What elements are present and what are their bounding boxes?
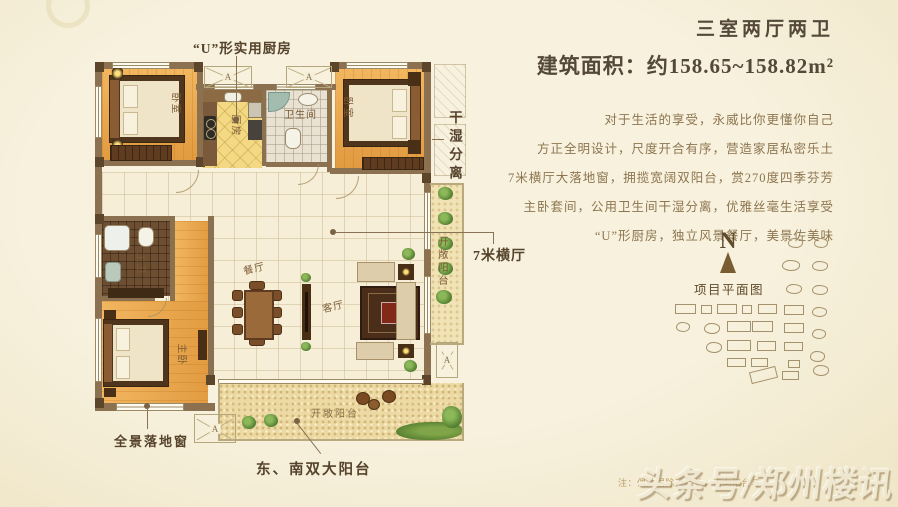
siteplan-building (812, 329, 826, 339)
siteplan-building (788, 360, 800, 368)
wall-pier (95, 157, 104, 167)
section-marker: A (286, 66, 332, 88)
wall (170, 216, 175, 301)
section-marker-label: A (223, 72, 234, 82)
kitchen-sink (224, 92, 242, 102)
chair (249, 281, 265, 290)
room-label-bathroom: 卫生间 (284, 106, 317, 121)
toilet-icon (138, 227, 154, 247)
plant-icon (438, 212, 453, 225)
siteplan-building (752, 321, 773, 332)
siteplan-building (727, 321, 751, 332)
plant-icon (402, 248, 415, 260)
room-label-masterbath: 主卫 (135, 253, 150, 275)
wardrobe (110, 145, 172, 161)
siteplan-building (812, 285, 828, 295)
side-table (398, 344, 414, 358)
sofa (356, 342, 394, 360)
siteplan-building (812, 307, 827, 317)
sliding-door (218, 379, 424, 384)
nightstand (408, 72, 421, 86)
leader-line (236, 56, 237, 118)
siteplan-building (742, 305, 752, 314)
wall-pier (95, 62, 104, 72)
nightstand-lamp (112, 68, 123, 79)
siteplan-building (675, 304, 696, 314)
description-line: 7米横厅大落地窗，拥揽宽阔双阳台，赏270度四季芬芳 (484, 164, 834, 193)
section-marker-label: A (304, 72, 315, 82)
chair (232, 290, 243, 301)
siteplan-building (788, 238, 803, 248)
toilet-icon (285, 128, 301, 149)
siteplan-building (782, 260, 800, 271)
siteplan-building (758, 304, 777, 314)
window (424, 192, 431, 250)
wall-pier (422, 62, 431, 72)
sofa (396, 282, 416, 340)
window (95, 234, 102, 278)
stove-icon (204, 116, 216, 140)
nightstand (408, 140, 421, 154)
siteplan-building (814, 238, 828, 248)
drywet-label: 干湿分离 (444, 110, 464, 184)
balcony-edge (462, 183, 464, 345)
plant-icon (404, 360, 417, 372)
fridge-icon (248, 102, 262, 118)
siteplan-building (751, 358, 768, 367)
siteplan-building (810, 351, 825, 362)
balcony-bottom-label: 开敞阳台 (311, 405, 359, 420)
corner-ring-watermark (46, 0, 90, 28)
vanity-counter (108, 288, 164, 298)
plant-icon (438, 187, 453, 200)
info-panel: 三室两厅两卫 建筑面积：约158.65~158.82m² 对于生活的享受，永威比… (484, 14, 834, 251)
siteplan-building (701, 305, 712, 314)
nightstand (104, 310, 116, 319)
shower-icon (105, 262, 121, 282)
siteplan-building (784, 305, 804, 315)
unit-type-title: 三室两厅两卫 (484, 14, 834, 41)
section-marker: A (436, 342, 458, 378)
wall-pier (422, 173, 431, 183)
panoramic-window-label: 全景落地窗 (114, 431, 189, 450)
siteplan-building (717, 304, 737, 314)
description-line: 对于生活的享受，永威比你更懂你自己 (484, 106, 834, 135)
cabinet (198, 330, 207, 360)
bed (104, 320, 168, 386)
balcony-right-label: 开敞阳台 (434, 236, 449, 288)
balcony-table (368, 399, 380, 410)
room-label-bedroom1: 卧室 (170, 93, 185, 115)
window (424, 276, 431, 334)
wardrobe (362, 157, 424, 170)
siteplan-building (813, 365, 829, 376)
plant-icon (301, 273, 311, 282)
wall (262, 88, 266, 166)
sink-icon (298, 93, 318, 106)
corridor-floor (175, 221, 208, 303)
bathtub-icon (104, 225, 130, 251)
window-panoramic (116, 403, 184, 411)
description-line: 方正全明设计，尺度开合有序，营造家居私密乐土 (484, 135, 834, 164)
wall-pier (95, 398, 104, 408)
tv-console (302, 284, 311, 340)
chair (232, 307, 243, 318)
leader-line (432, 139, 444, 140)
wall (95, 216, 175, 221)
wall (208, 216, 214, 383)
leader-line (147, 409, 148, 429)
wall (327, 88, 332, 172)
plant-icon (301, 342, 311, 351)
siteplan-building (812, 261, 828, 271)
section-marker: A (194, 414, 236, 443)
section-marker-label: A (442, 355, 453, 365)
section-marker: A (204, 66, 252, 88)
dining-table (244, 290, 274, 340)
siteplan-building (676, 322, 690, 332)
bush-icon (442, 406, 462, 428)
wall-pier (95, 214, 104, 224)
description-line: 主卧套间，公用卫生间干湿分离，优雅丝毫生活享受 (484, 193, 834, 222)
wall-pier (206, 375, 215, 385)
sofa (357, 262, 395, 282)
side-table (398, 264, 414, 280)
nightstand (104, 388, 116, 397)
leader-dot (233, 117, 239, 123)
room-label-masterbedroom: 主卧 (176, 344, 191, 366)
siteplan-building (784, 342, 803, 351)
balcony-chair (382, 390, 396, 403)
room-label-bedroom2: 卧室 (342, 97, 357, 119)
siteplan-building (727, 358, 746, 367)
siteplan-building (749, 366, 778, 384)
siteplan-building (704, 323, 720, 334)
section-marker-label: A (210, 423, 221, 433)
double-balcony-label: 东、南双大阳台 (256, 458, 372, 479)
plant-icon (242, 416, 256, 429)
balcony-edge (462, 383, 464, 441)
window (346, 62, 408, 69)
watermark: 头条号/郑州楼讯 (635, 457, 896, 506)
plant-icon (264, 414, 278, 427)
plant-icon (436, 290, 452, 304)
window (95, 318, 102, 382)
wall-pier (194, 62, 203, 72)
oven-icon (248, 120, 262, 140)
leader-line (336, 232, 494, 233)
wall (424, 62, 431, 183)
chair (232, 324, 243, 335)
floorplan-page: A A A A 卧室 厨房 卫生间 卧室 主卫 主卧 餐厅 客厅 开敞阳台 开敞… (0, 0, 898, 507)
siteplan-building (757, 341, 776, 351)
area-line: 建筑面积：约158.65~158.82m² (484, 50, 834, 80)
siteplan-building (782, 371, 799, 380)
siteplan-building (784, 323, 804, 333)
kitchen-callout-label: “U”形实用厨房 (193, 37, 292, 57)
siteplan-building (706, 342, 722, 353)
window (95, 86, 102, 138)
siteplan-building (786, 284, 802, 294)
siteplan-buildings (670, 228, 845, 393)
siteplan-building (727, 340, 751, 351)
